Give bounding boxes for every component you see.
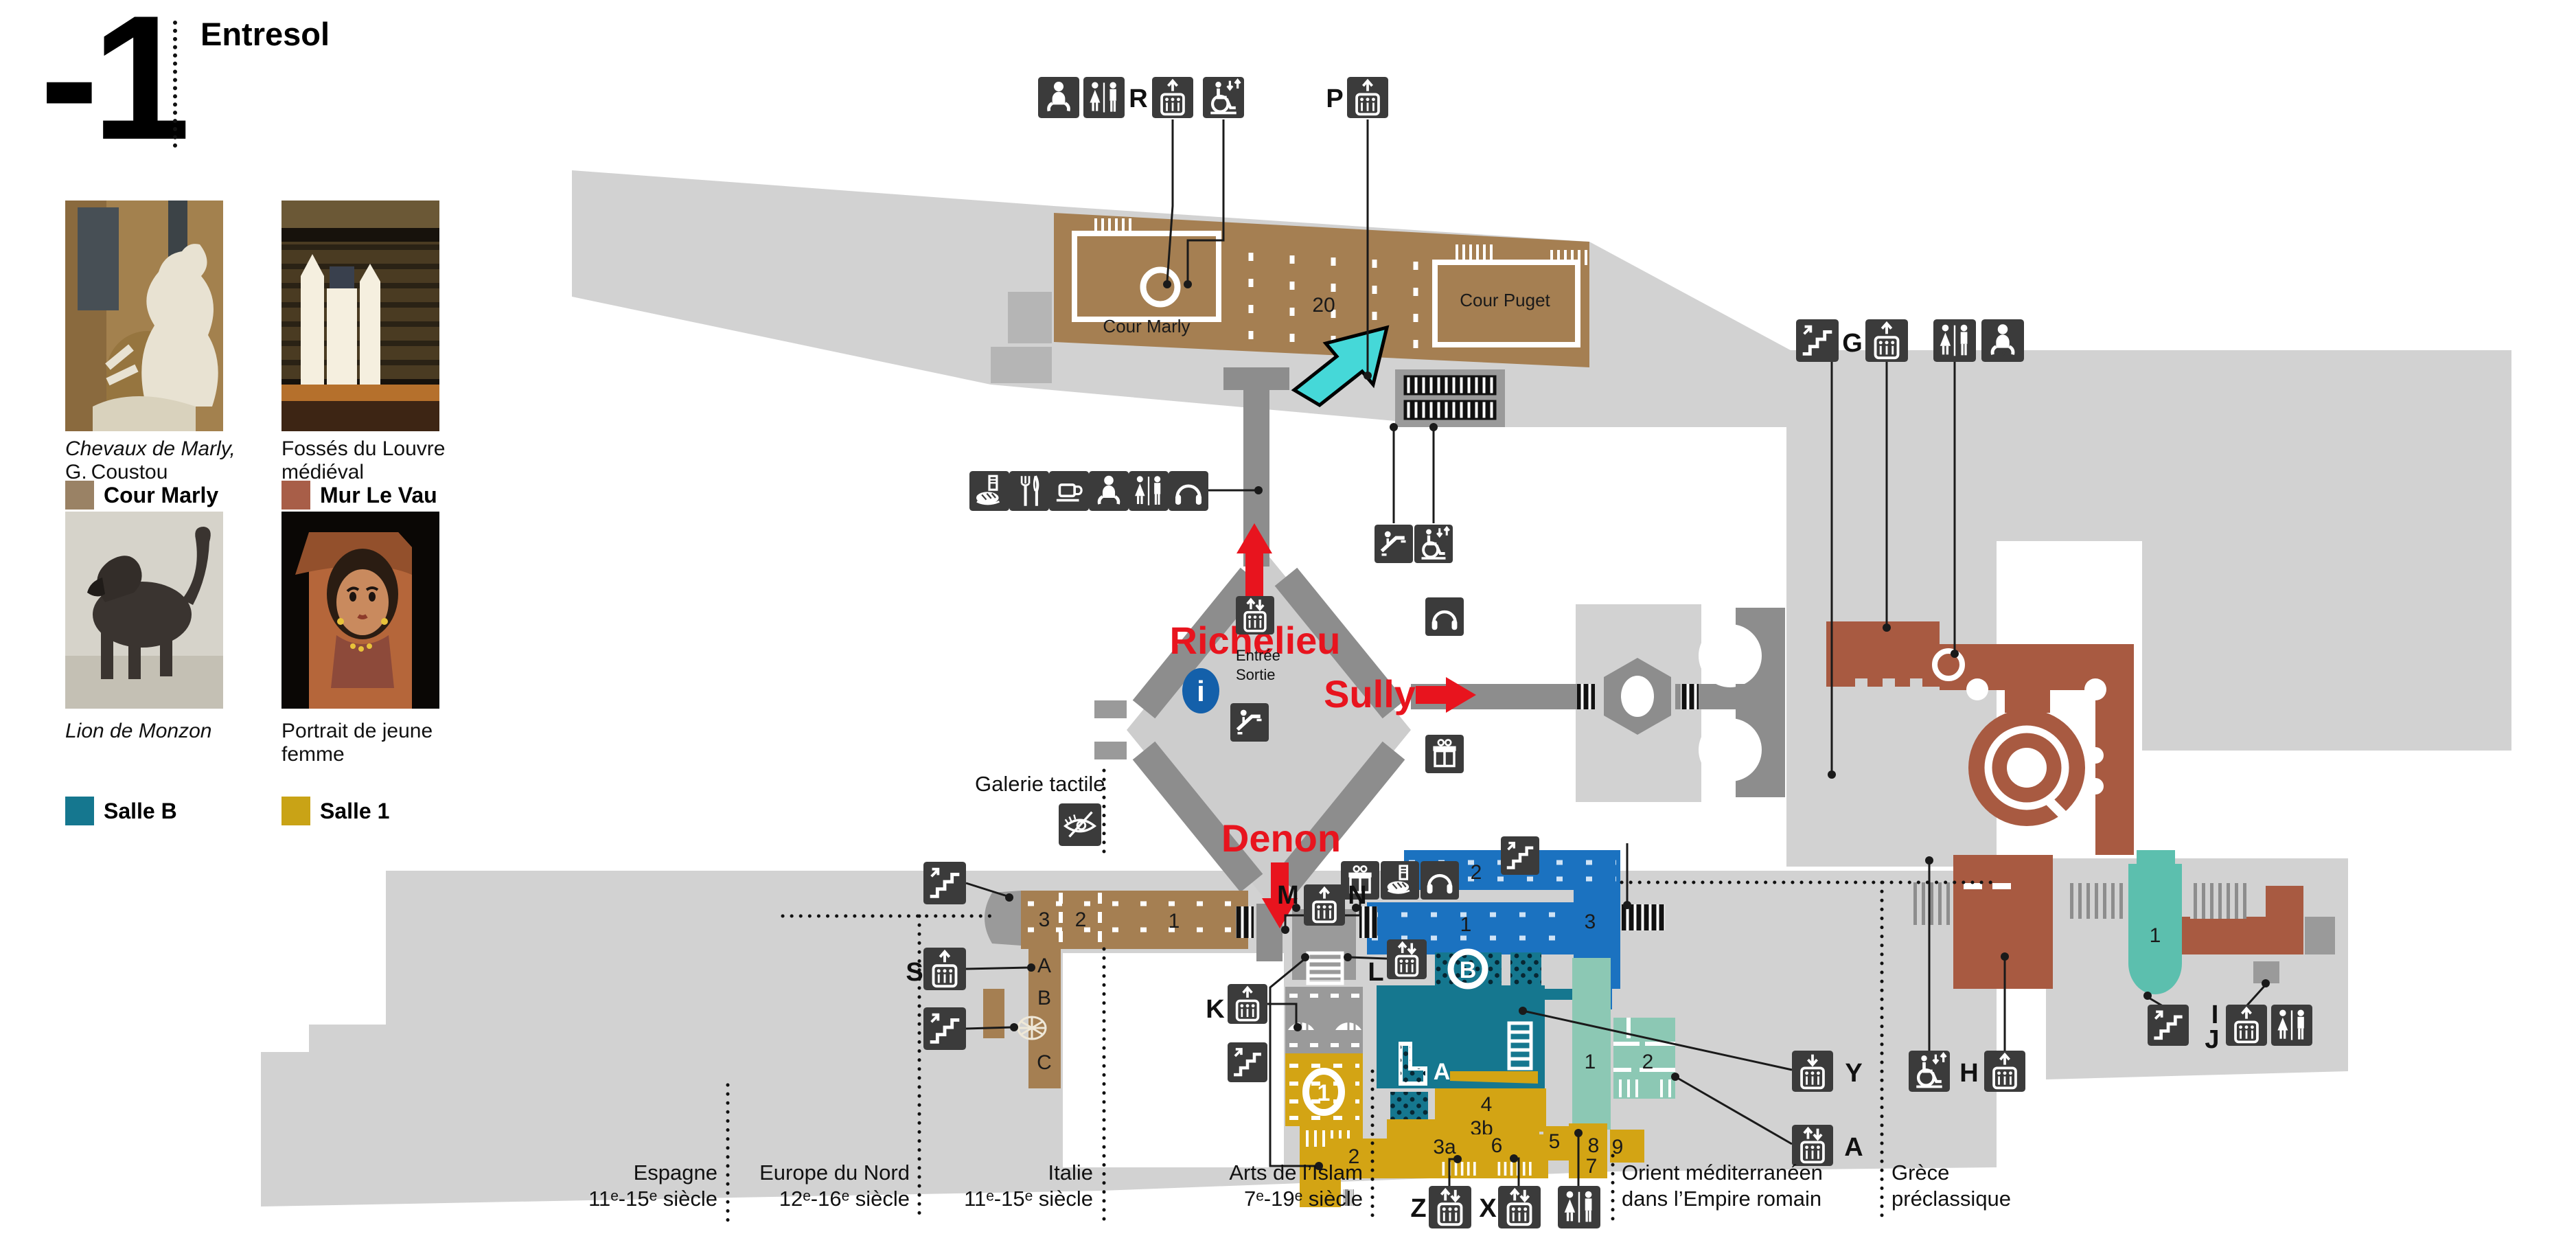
room-label: B xyxy=(1037,987,1051,1009)
room-label: 1 xyxy=(1460,913,1472,936)
restrooms-icon xyxy=(1129,471,1169,511)
baby-care-icon xyxy=(1038,77,1079,118)
restaurant-icon xyxy=(1009,471,1049,511)
salle-b-label: B xyxy=(1460,957,1477,983)
tan-block xyxy=(983,989,1004,1038)
elevator-letter: A xyxy=(1844,1133,1863,1162)
elevator-letter: P xyxy=(1326,84,1343,113)
restrooms-icon xyxy=(1083,77,1125,118)
elevator-up-icon xyxy=(1228,984,1267,1024)
audio-guide-icon xyxy=(1169,471,1208,511)
snack-bar-icon xyxy=(969,471,1009,511)
stair-hatch xyxy=(1359,906,1377,938)
fan-stairs xyxy=(985,891,1021,946)
annex-block xyxy=(991,347,1052,383)
maroon-lower-block xyxy=(1953,855,2053,989)
escalator-icon xyxy=(1230,703,1269,742)
gray-stub xyxy=(2305,917,2335,954)
audio-guide-icon xyxy=(1421,861,1459,900)
stairs-icon xyxy=(923,862,966,904)
elevator-up-icon xyxy=(1865,319,1908,362)
stairs-icon xyxy=(2148,1005,2189,1046)
room-label: 1 xyxy=(1169,910,1180,933)
elevator-letter: R xyxy=(1129,84,1147,113)
stair-hatch xyxy=(1236,906,1254,938)
maroon-upper-block xyxy=(1826,621,1940,687)
stairs-icon xyxy=(1228,1042,1267,1082)
cafe-icon xyxy=(1049,471,1089,511)
elevator-letter: J xyxy=(2205,1025,2219,1054)
room-20-label: 20 xyxy=(1312,294,1335,317)
accessible-elevator-icon xyxy=(1909,1051,1950,1092)
stairs-icon xyxy=(923,1007,966,1050)
tactile-gallery-icon xyxy=(1059,803,1101,846)
info-letter: i xyxy=(1197,675,1205,707)
salle-a-label: A xyxy=(1434,1059,1451,1085)
room-label: 4 xyxy=(1481,1093,1493,1116)
spiral-stairs xyxy=(1018,1017,1046,1039)
elevator-up-icon xyxy=(1304,884,1345,926)
elevator-updown-icon xyxy=(1792,1125,1833,1166)
orient-salle-2: 2 xyxy=(1613,1018,1675,1099)
richelieu-junction xyxy=(1223,367,1289,390)
baby-care-icon xyxy=(1089,471,1129,511)
elevator-up-icon xyxy=(923,948,966,990)
section-period: 11ᵉ-15ᵉ siècle xyxy=(588,1187,717,1211)
baby-care-icon xyxy=(1981,319,2024,362)
restrooms-icon xyxy=(1558,1186,1600,1228)
annex-block xyxy=(1008,292,1052,343)
room-label: A xyxy=(1037,954,1051,977)
elevator-letter: K xyxy=(1206,995,1225,1024)
elevator-down-icon xyxy=(1792,1051,1833,1092)
room-label: 6 xyxy=(1491,1134,1503,1157)
elevator-updown-icon xyxy=(1429,1186,1471,1228)
elevator-updown-icon xyxy=(1498,1186,1541,1228)
section-period: 12ᵉ-16ᵉ siècle xyxy=(779,1187,910,1211)
elevator-letter: N xyxy=(1348,881,1366,910)
section-name: Europe du Nord xyxy=(759,1160,910,1185)
elevator-letter: S xyxy=(906,958,923,987)
gift-shop-icon xyxy=(1425,735,1464,773)
elevator-up-icon xyxy=(1152,77,1193,118)
floor-map: Cour Marly 20 Cour Puget 1 3 2 1 A B C xyxy=(0,0,2576,1258)
elevator-up-icon xyxy=(1984,1051,2025,1092)
elevator-updown-icon xyxy=(1387,939,1427,979)
snack-bar-icon xyxy=(1381,861,1419,900)
section-period: préclassique xyxy=(1891,1187,2011,1211)
section-period: dans l’Empire romain xyxy=(1622,1187,1821,1211)
cour-marly-label: Cour Marly xyxy=(1103,316,1190,336)
elevator-updown-icon xyxy=(1236,596,1274,634)
denon-label: Denon xyxy=(1221,816,1341,860)
west-stub xyxy=(1094,742,1127,759)
teal-comb xyxy=(2137,850,2175,865)
elevator-letter: H xyxy=(1959,1059,1978,1088)
elevator-letter: Y xyxy=(1845,1059,1862,1088)
section-period: 7ᵉ-19ᵉ siècle xyxy=(1244,1187,1363,1211)
maroon-arm-block xyxy=(2266,886,2303,917)
room-label: 2 xyxy=(1642,1051,1654,1073)
cour-puget-label: Cour Puget xyxy=(1460,290,1550,310)
accessible-elevator-icon xyxy=(1414,525,1453,563)
section-name: Orient méditerranéen xyxy=(1622,1160,1823,1185)
restrooms-icon xyxy=(2271,1005,2312,1046)
room-label: 2 xyxy=(1075,908,1087,931)
building-right-block xyxy=(2142,541,2511,751)
entrance-label: Entrée xyxy=(1236,647,1280,664)
audio-guide-icon xyxy=(1425,597,1464,636)
exit-label: Sortie xyxy=(1236,666,1275,683)
west-stub xyxy=(1094,700,1127,718)
section-name: Espagne xyxy=(634,1160,717,1185)
galerie-tactile-label: Galerie tactile xyxy=(975,772,1105,796)
accessible-elevator-icon xyxy=(1203,77,1244,118)
stairs-icon xyxy=(1501,836,1539,875)
escalator-bank xyxy=(1395,369,1505,427)
section-name: Arts de l’Islam xyxy=(1229,1160,1363,1185)
elevator-letter: X xyxy=(1479,1194,1497,1223)
section-period: 11ᵉ-15ᵉ siècle xyxy=(964,1187,1093,1211)
maroon-neck xyxy=(2005,688,2050,713)
section-name: Italie xyxy=(1048,1160,1093,1185)
room-label: 3 xyxy=(1039,908,1050,931)
room-label: 8 xyxy=(1588,1134,1600,1157)
sculpture-wing: Cour Marly 20 Cour Puget xyxy=(1054,213,1589,367)
stair-hatch xyxy=(2065,883,2123,919)
elevator-letter: Z xyxy=(1410,1194,1426,1223)
elevator-up-icon xyxy=(2226,1005,2267,1046)
room-label: 3a xyxy=(1433,1136,1456,1158)
room-label: 2 xyxy=(1471,861,1482,884)
elevator-letter: L xyxy=(1368,958,1383,987)
stairs-icon xyxy=(1796,319,1839,362)
room-label: 5 xyxy=(1549,1130,1561,1153)
sully-label: Sully xyxy=(1324,672,1416,716)
elevator-letter: M xyxy=(1277,881,1299,910)
elevator-letter: G xyxy=(1842,329,1863,358)
room-label: 7 xyxy=(1586,1155,1598,1178)
escalator-icon xyxy=(1375,525,1413,563)
tan-band xyxy=(1021,891,1248,949)
room-label: 1 xyxy=(2150,924,2161,947)
room-label: C xyxy=(1037,1051,1052,1074)
stair-hatch xyxy=(2190,883,2246,919)
elevator-up-icon xyxy=(1347,77,1388,118)
building-step xyxy=(309,1025,386,1053)
teal-link xyxy=(1545,989,1574,1000)
orient-salle-1 xyxy=(1572,958,1611,1130)
room-label: 3 xyxy=(1585,911,1596,933)
salle-1-label: 1 xyxy=(1318,1080,1331,1106)
stair-hatch xyxy=(1910,882,1953,925)
room-label: 1 xyxy=(1585,1051,1596,1073)
section-name: Grèce xyxy=(1891,1160,1949,1185)
restrooms-icon xyxy=(1933,319,1976,362)
